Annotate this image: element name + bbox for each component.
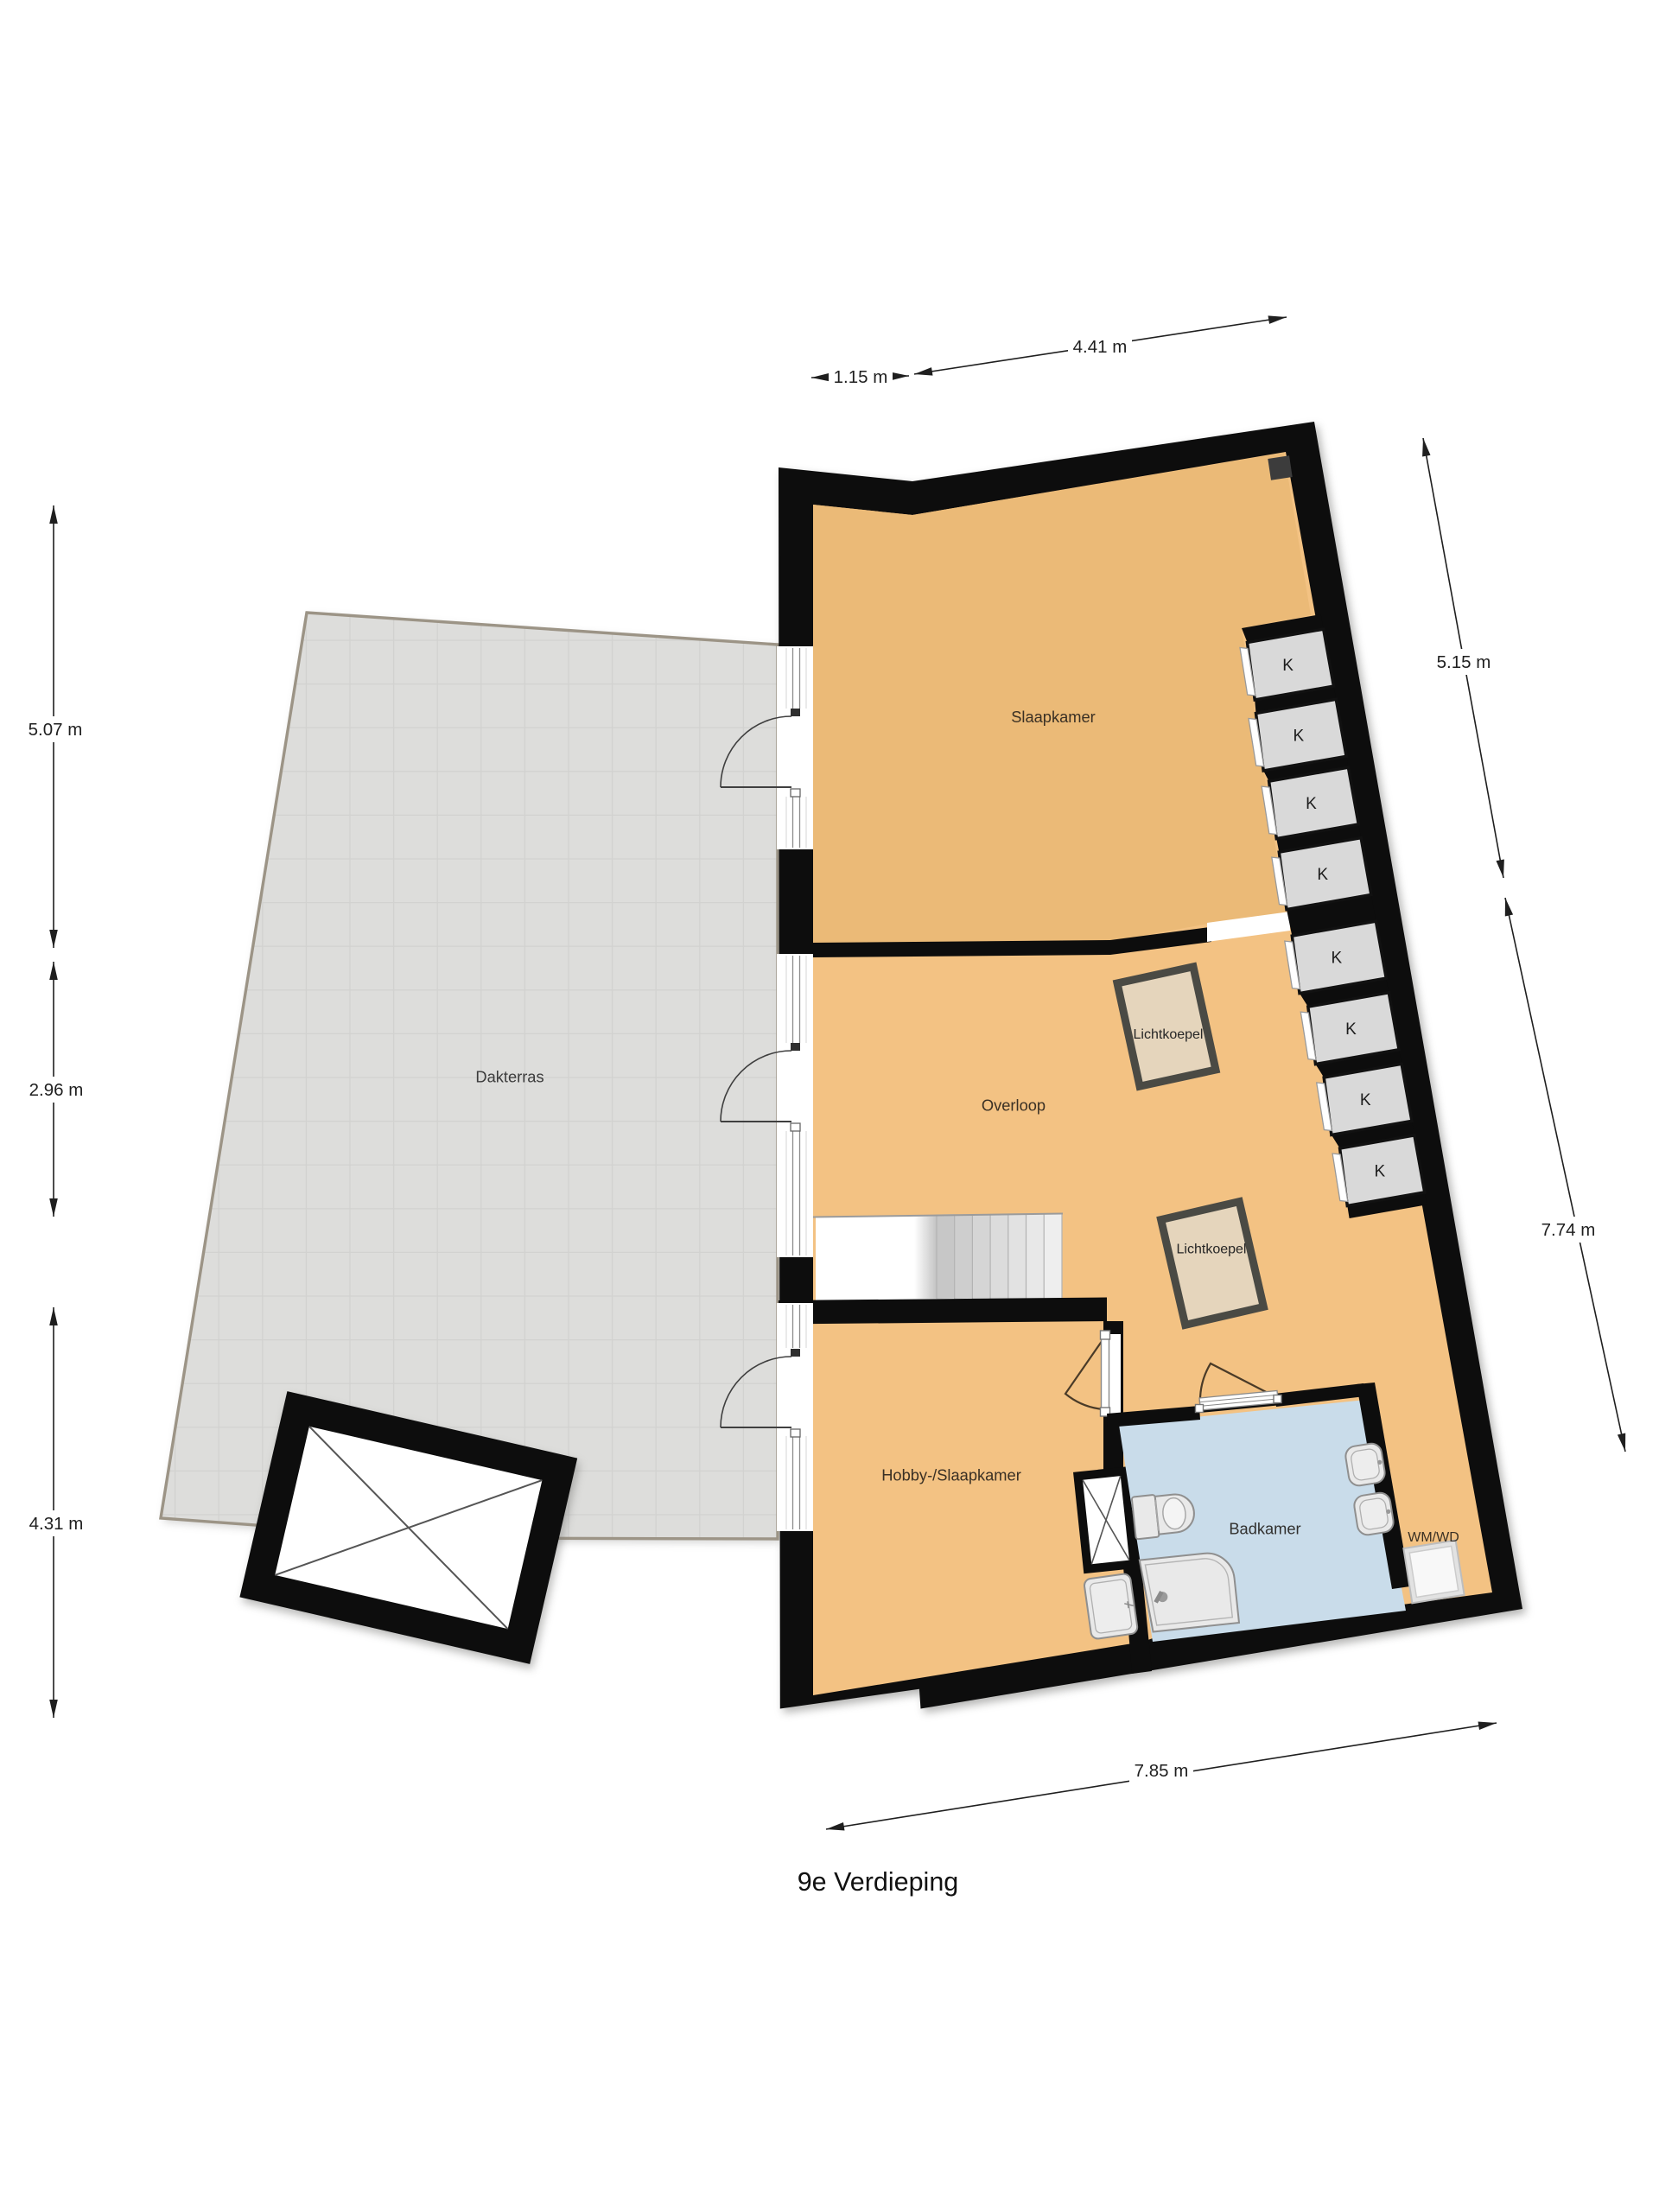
svg-text:K: K	[1360, 1091, 1371, 1109]
svg-text:Lichtkoepel: Lichtkoepel	[1134, 1027, 1204, 1042]
svg-text:5.07 m: 5.07 m	[29, 720, 83, 740]
svg-text:7.85 m: 7.85 m	[1135, 1761, 1189, 1781]
svg-text:K: K	[1294, 727, 1305, 745]
svg-text:Hobby-/Slaapkamer: Hobby-/Slaapkamer	[881, 1466, 1021, 1484]
svg-text:5.15 m: 5.15 m	[1437, 652, 1491, 672]
svg-text:9e Verdieping: 9e Verdieping	[798, 1867, 959, 1897]
svg-text:Badkamer: Badkamer	[1229, 1520, 1300, 1538]
svg-text:K: K	[1317, 866, 1328, 884]
svg-text:K: K	[1306, 795, 1317, 813]
svg-text:7.74 m: 7.74 m	[1541, 1220, 1596, 1240]
svg-text:Overloop: Overloop	[982, 1096, 1046, 1115]
svg-text:2.96 m: 2.96 m	[29, 1080, 84, 1100]
svg-text:Dakterras: Dakterras	[475, 1068, 543, 1086]
svg-text:1.15 m: 1.15 m	[834, 367, 888, 387]
svg-text:K: K	[1332, 950, 1343, 968]
svg-text:K: K	[1282, 657, 1294, 675]
svg-text:WM/WD: WM/WD	[1408, 1530, 1459, 1545]
svg-text:4.31 m: 4.31 m	[29, 1514, 84, 1534]
svg-text:4.41 m: 4.41 m	[1073, 337, 1128, 357]
svg-text:K: K	[1345, 1020, 1357, 1039]
svg-text:K: K	[1374, 1162, 1385, 1180]
svg-text:Slaapkamer: Slaapkamer	[1011, 708, 1096, 726]
svg-text:Lichtkoepel: Lichtkoepel	[1177, 1243, 1247, 1257]
